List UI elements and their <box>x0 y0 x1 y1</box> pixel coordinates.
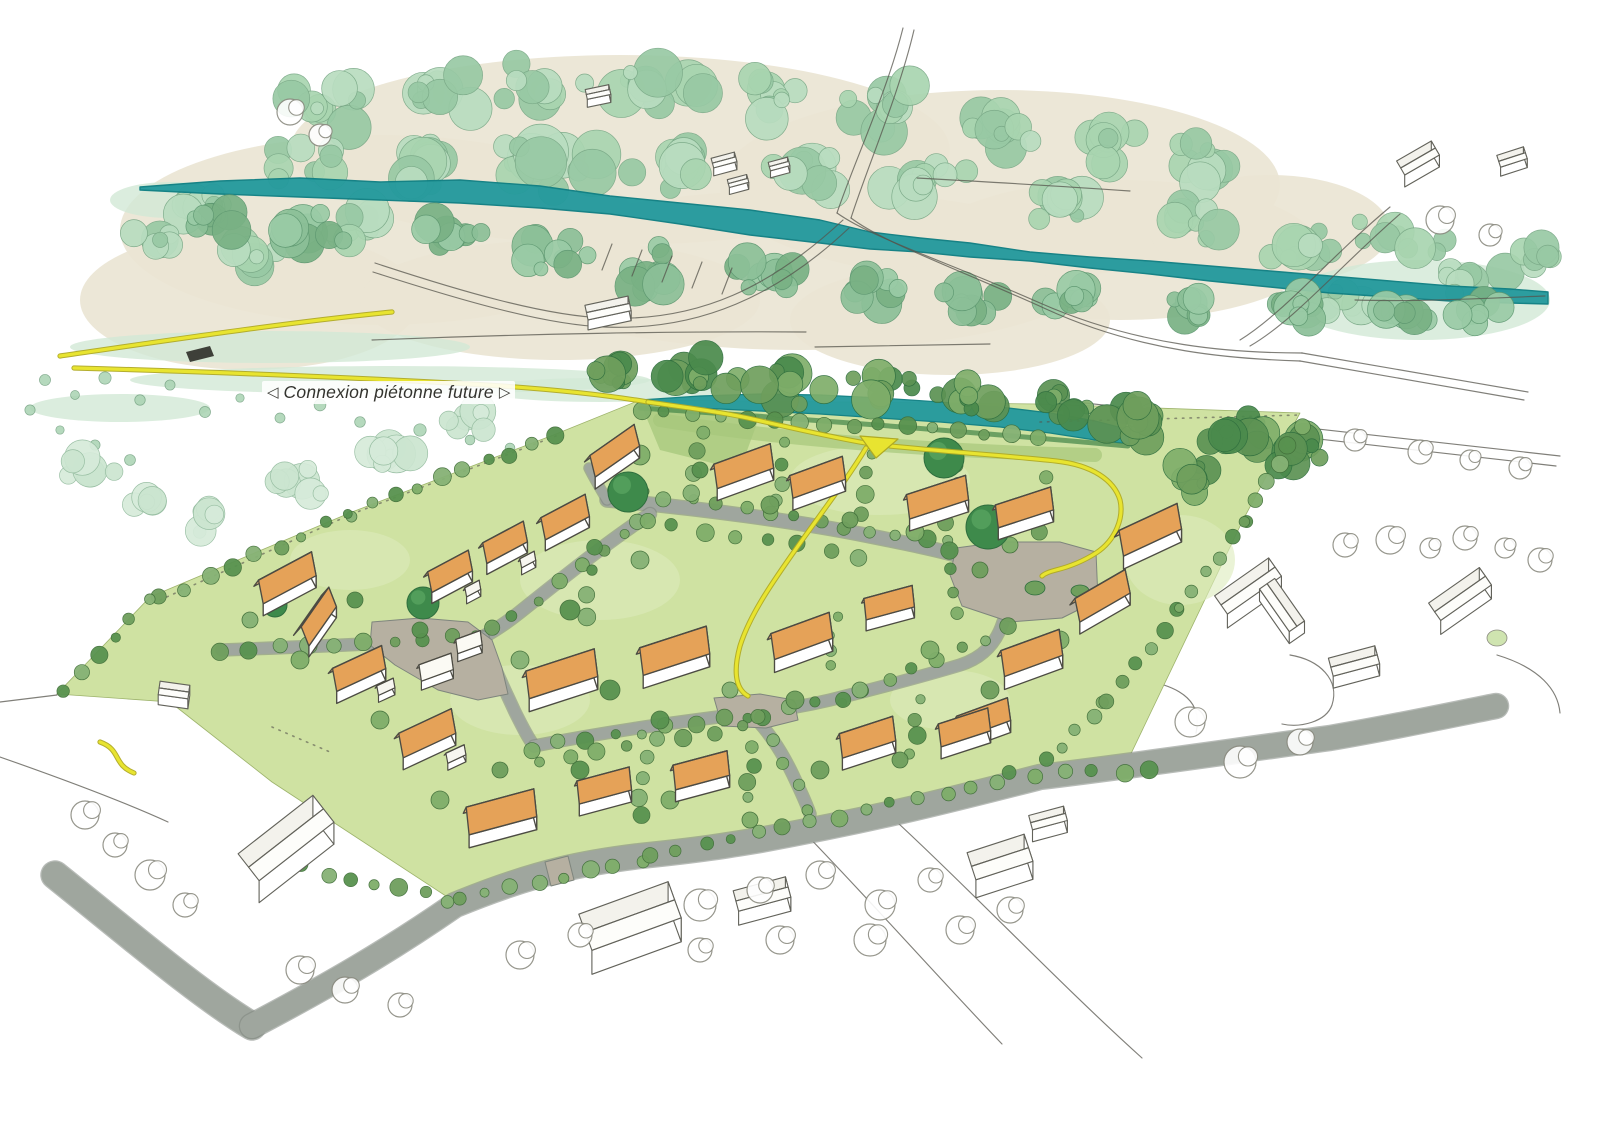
left-arrow-icon: ◁ <box>267 385 279 400</box>
house <box>967 834 1033 898</box>
house <box>1397 141 1440 187</box>
outline-tree <box>1426 206 1455 234</box>
tree-cluster <box>185 496 225 546</box>
tree-cluster <box>355 430 428 473</box>
house <box>1429 568 1492 635</box>
outline-tree <box>277 99 304 125</box>
house <box>579 882 681 975</box>
outline-tree <box>135 860 167 890</box>
outline-tree <box>688 938 713 962</box>
outline-tree <box>1528 548 1553 572</box>
outline-tree <box>309 124 332 146</box>
outline-tree <box>332 977 359 1003</box>
outline-tree <box>806 861 835 889</box>
outline-tree <box>388 993 413 1017</box>
outline-tree <box>1376 526 1405 554</box>
outline-tree <box>684 889 718 921</box>
pedestrian-connection-annotation: ◁ Connexion piétonne future ▷ <box>262 381 515 404</box>
house <box>158 681 190 709</box>
outline-tree <box>71 801 100 829</box>
outline-tree <box>1509 457 1532 479</box>
house <box>1497 147 1527 176</box>
outline-tree <box>918 868 943 892</box>
outline-tree <box>946 916 975 944</box>
house <box>1328 646 1379 688</box>
pedestrian-connection-label: Connexion piétonne future <box>284 382 494 403</box>
outline-tree <box>173 893 198 917</box>
outline-tree <box>997 897 1024 923</box>
outline-tree <box>506 941 535 969</box>
tree-cluster <box>265 460 328 509</box>
right-arrow-icon: ▷ <box>499 385 511 400</box>
outline-tree <box>854 924 888 956</box>
outline-tree <box>766 926 795 954</box>
outline-tree <box>1333 533 1358 557</box>
house <box>1029 806 1068 842</box>
outline-tree <box>1460 450 1481 470</box>
outline-tree <box>103 833 128 857</box>
page: ◁ Connexion piétonne future ▷ <box>0 0 1600 1131</box>
outline-tree <box>1495 538 1516 558</box>
outline-tree <box>1453 526 1478 550</box>
house <box>1260 578 1305 643</box>
outline-tree <box>1175 707 1207 737</box>
outline-tree <box>1479 224 1502 246</box>
masterplan-sketch-canvas <box>0 0 1600 1131</box>
outline-tree <box>1408 440 1433 464</box>
tree-cluster <box>59 440 122 487</box>
tree-cluster <box>122 482 166 516</box>
outline-tree <box>1224 746 1258 778</box>
outline-tree <box>865 890 897 920</box>
house <box>238 795 334 902</box>
outline-tree <box>1344 429 1367 451</box>
outline-tree <box>1420 538 1441 558</box>
